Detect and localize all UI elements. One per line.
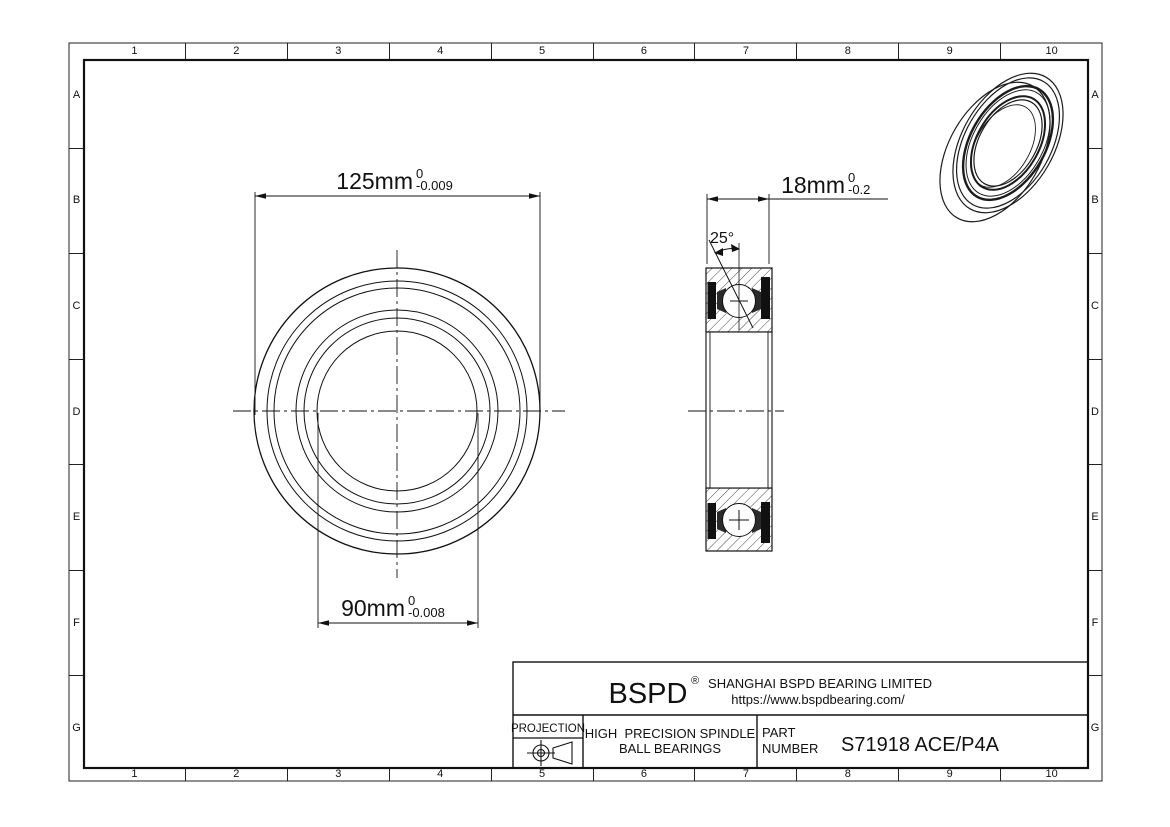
arrowhead (529, 193, 540, 198)
company-logo: BSPD (609, 678, 688, 710)
drawing-sheet-svg: 125mm 0 -0.009 90mm 0 -0.008 (0, 0, 1170, 827)
outer-border (69, 43, 1102, 781)
arrowhead (255, 193, 266, 198)
arrowhead (707, 196, 718, 201)
company-website: https://www.bspdbearing.com/ (731, 692, 905, 707)
contact-angle-value: 25° (710, 230, 734, 247)
bearing-outer-face (930, 54, 1086, 232)
dim-tolerance-lower: -0.008 (408, 605, 445, 620)
seal-outer-edge (945, 71, 1072, 216)
first-angle-projection-icon (527, 740, 572, 766)
part-number-value: S71918 ACE/P4A (841, 734, 1000, 756)
projection-label: PROJECTION (511, 723, 585, 735)
sheet-borders (69, 43, 1102, 781)
seal-left (708, 282, 717, 319)
registered-mark: ® (691, 675, 699, 687)
seal-inner-edge (956, 83, 1061, 202)
dim-value: 18mm (781, 172, 845, 198)
front-view: 125mm 0 -0.009 90mm 0 -0.008 (233, 166, 565, 628)
dimension-outer-diameter: 125mm 0 -0.009 (255, 166, 540, 415)
dim-value: 90mm (341, 595, 405, 621)
front-view-centerlines (233, 250, 565, 578)
arrowhead (467, 620, 478, 625)
bearing-back-silhouette (917, 63, 1073, 241)
part-number-label-line1: PART (762, 725, 796, 740)
section-view: 25° 18mm 0 -0.2 (688, 170, 888, 551)
part-number-label-line2: NUMBER (762, 741, 818, 756)
product-title-line2: BALL BEARINGS (619, 741, 721, 756)
seal-left (708, 503, 717, 539)
dim-tolerance-lower: -0.009 (416, 178, 453, 193)
product-title-line1: HIGH PRECISION SPINDLE (585, 726, 756, 741)
bore-inner-wall (957, 94, 1049, 199)
title-block: BSPD ® SHANGHAI BSPD BEARING LIMITED htt… (511, 662, 1088, 768)
seal-right (761, 502, 770, 543)
projection-icon-frustum (553, 742, 572, 764)
seal-right (761, 277, 770, 319)
inner-ring-bore-region (706, 332, 772, 488)
arrowhead (318, 620, 329, 625)
arrowhead (758, 196, 769, 201)
dim-tolerance-lower: -0.2 (848, 182, 870, 197)
dim-value: 125mm (336, 168, 413, 194)
isometric-bearing-view (917, 54, 1086, 241)
company-name: SHANGHAI BSPD BEARING LIMITED (708, 676, 932, 691)
